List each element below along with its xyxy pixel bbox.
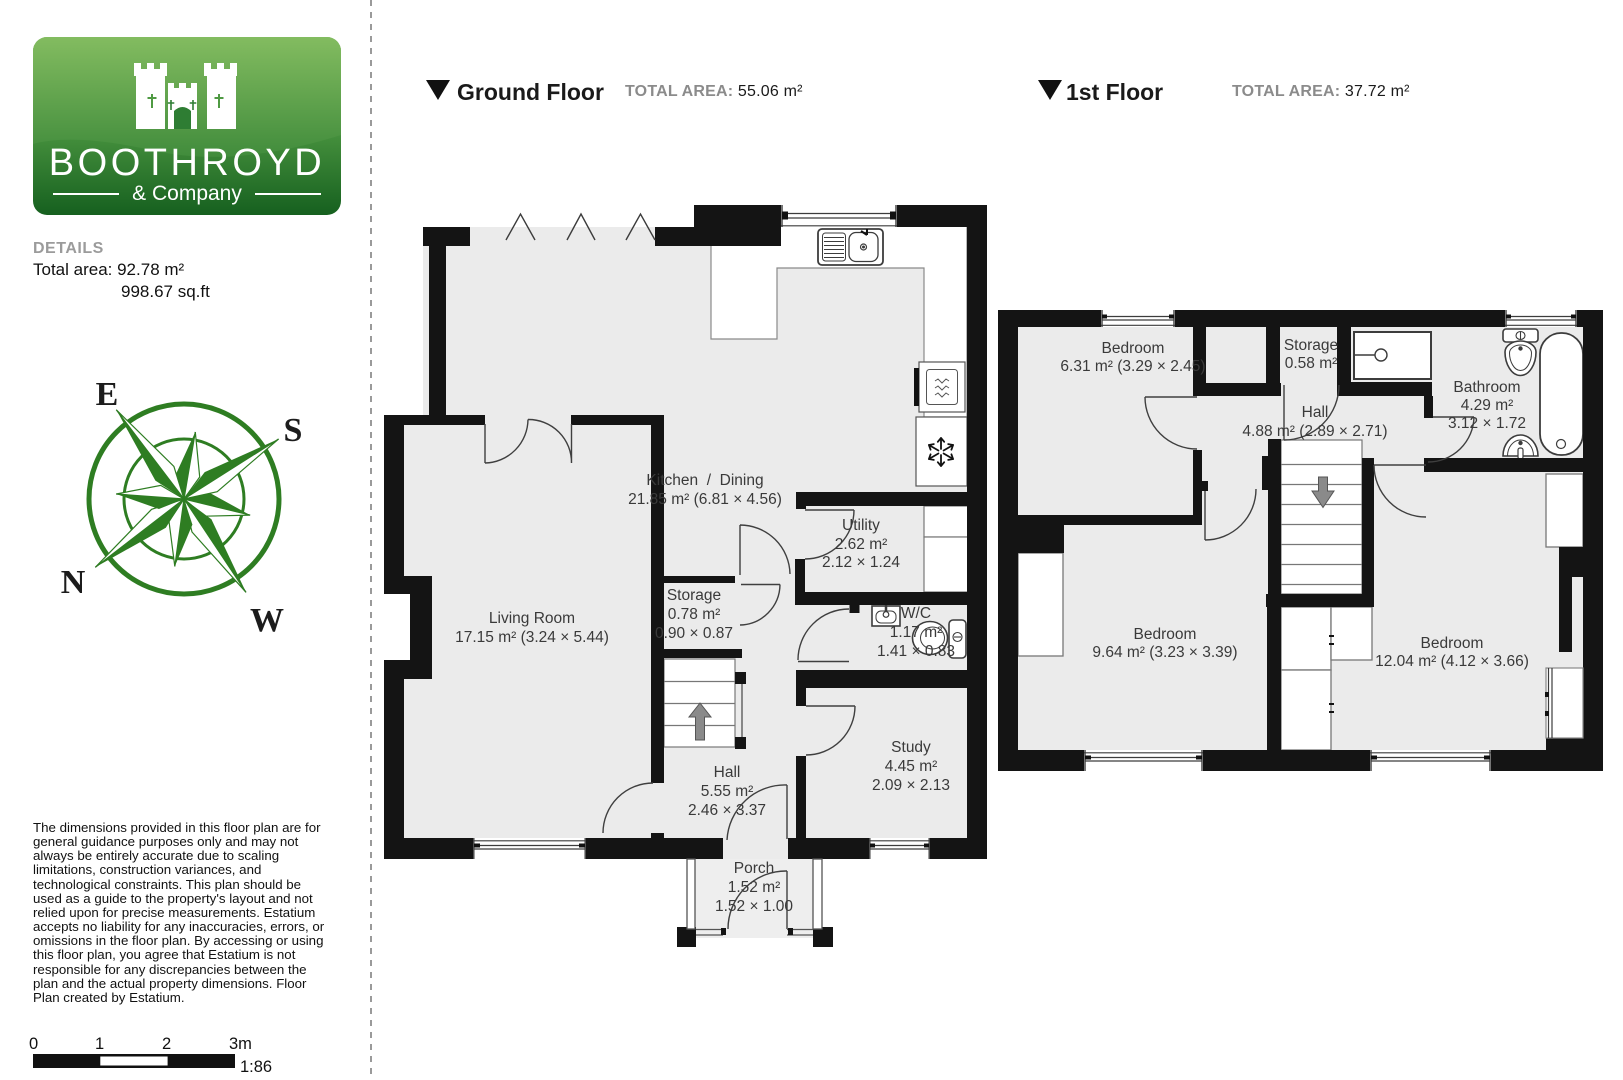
svg-text:0.58 m²: 0.58 m² [1285,355,1338,372]
svg-text:Bedroom: Bedroom [1421,635,1484,652]
svg-text:Storage: Storage [1284,337,1338,354]
svg-text:6.31 m² (3.29 × 2.45): 6.31 m² (3.29 × 2.45) [1060,358,1205,375]
svg-text:0.78 m²: 0.78 m² [668,606,721,623]
svg-text:5.55 m²: 5.55 m² [701,783,754,800]
svg-text:W/C: W/C [901,605,931,622]
svg-text:21.85 m² (6.81 × 4.56): 21.85 m² (6.81 × 4.56) [628,491,782,508]
svg-text:1.41 × 0.83: 1.41 × 0.83 [877,643,955,660]
svg-text:Porch: Porch [734,860,775,877]
svg-text:2.46 × 3.37: 2.46 × 3.37 [688,802,766,819]
svg-text:4.29 m²: 4.29 m² [1461,397,1514,414]
svg-text:12.04 m² (4.12 × 3.66): 12.04 m² (4.12 × 3.66) [1375,653,1529,670]
svg-text:Storage: Storage [667,587,721,604]
svg-text:3.12 × 1.72: 3.12 × 1.72 [1448,415,1526,432]
svg-text:Bedroom: Bedroom [1102,340,1165,357]
svg-text:Bathroom: Bathroom [1453,379,1520,396]
svg-text:17.15 m² (3.24 × 5.44): 17.15 m² (3.24 × 5.44) [455,629,609,646]
svg-text:2.09 × 2.13: 2.09 × 2.13 [872,777,950,794]
svg-text:1.52 × 1.00: 1.52 × 1.00 [715,898,793,915]
svg-text:Living Room: Living Room [489,610,575,627]
svg-text:Hall: Hall [714,764,741,781]
svg-text:1.17 m²: 1.17 m² [890,624,943,641]
svg-text:Study: Study [891,739,931,756]
svg-text:9.64 m² (3.23 × 3.39): 9.64 m² (3.23 × 3.39) [1092,644,1237,661]
svg-text:Hall: Hall [1302,404,1329,421]
svg-text:0.90 × 0.87: 0.90 × 0.87 [655,625,733,642]
svg-text:4.88 m² (2.89 × 2.71): 4.88 m² (2.89 × 2.71) [1242,423,1387,440]
svg-text:Bedroom: Bedroom [1134,626,1197,643]
svg-text:2.62 m²: 2.62 m² [835,536,888,553]
svg-text:Kitchen / Dining: Kitchen / Dining [646,472,763,489]
svg-text:Utility: Utility [842,517,880,534]
svg-text:4.45 m²: 4.45 m² [885,758,938,775]
svg-text:1.52 m²: 1.52 m² [728,879,781,896]
svg-text:2.12 × 1.24: 2.12 × 1.24 [822,554,900,571]
